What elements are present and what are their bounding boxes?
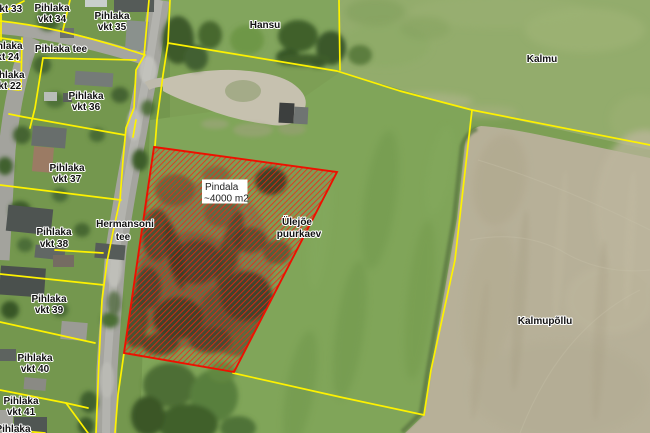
svg-text:Hermansoni: Hermansoni	[96, 219, 154, 230]
svg-text:vkt 39: vkt 39	[35, 305, 64, 316]
svg-text:vkt 37: vkt 37	[53, 174, 82, 185]
svg-text:Pihlaka: Pihlaka	[0, 424, 31, 433]
svg-text:vkt 36: vkt 36	[72, 102, 101, 113]
svg-text:Pihlaka: Pihlaka	[34, 3, 69, 14]
svg-text:Hansu: Hansu	[250, 20, 281, 31]
svg-text:Pihlaka: Pihlaka	[3, 396, 38, 407]
svg-text:Pihlaka tee: Pihlaka tee	[35, 44, 88, 55]
svg-text:Pihlaka: Pihlaka	[17, 353, 52, 364]
svg-text:Ülejõe: Ülejõe	[282, 215, 312, 228]
svg-text:vkt 24: vkt 24	[0, 52, 20, 63]
svg-text:Pihlaka: Pihlaka	[0, 70, 25, 81]
svg-text:~4000 m2: ~4000 m2	[204, 194, 249, 205]
svg-text:vkt 34: vkt 34	[38, 14, 67, 25]
svg-text:Pihlaka: Pihlaka	[31, 294, 66, 305]
svg-text:vkt 40: vkt 40	[21, 364, 50, 375]
svg-text:vkt 41: vkt 41	[7, 407, 36, 418]
svg-text:Kalmupõllu: Kalmupõllu	[518, 316, 572, 327]
svg-text:Pihlaka: Pihlaka	[68, 91, 103, 102]
svg-text:Pihlaka: Pihlaka	[36, 227, 71, 238]
svg-text:Pihlaka: Pihlaka	[0, 41, 23, 52]
svg-text:Pihlaka: Pihlaka	[49, 163, 84, 174]
svg-text:vkt 33: vkt 33	[0, 4, 23, 15]
svg-text:tee: tee	[116, 232, 131, 243]
svg-text:Pihlaka: Pihlaka	[94, 11, 129, 22]
svg-text:Kalmu: Kalmu	[527, 54, 558, 65]
svg-text:vkt 35: vkt 35	[98, 22, 127, 33]
svg-text:Pindala: Pindala	[205, 182, 239, 193]
svg-text:puurkaev: puurkaev	[277, 229, 322, 240]
svg-text:vkt 22: vkt 22	[0, 81, 22, 92]
svg-text:vkt 38: vkt 38	[40, 239, 69, 250]
